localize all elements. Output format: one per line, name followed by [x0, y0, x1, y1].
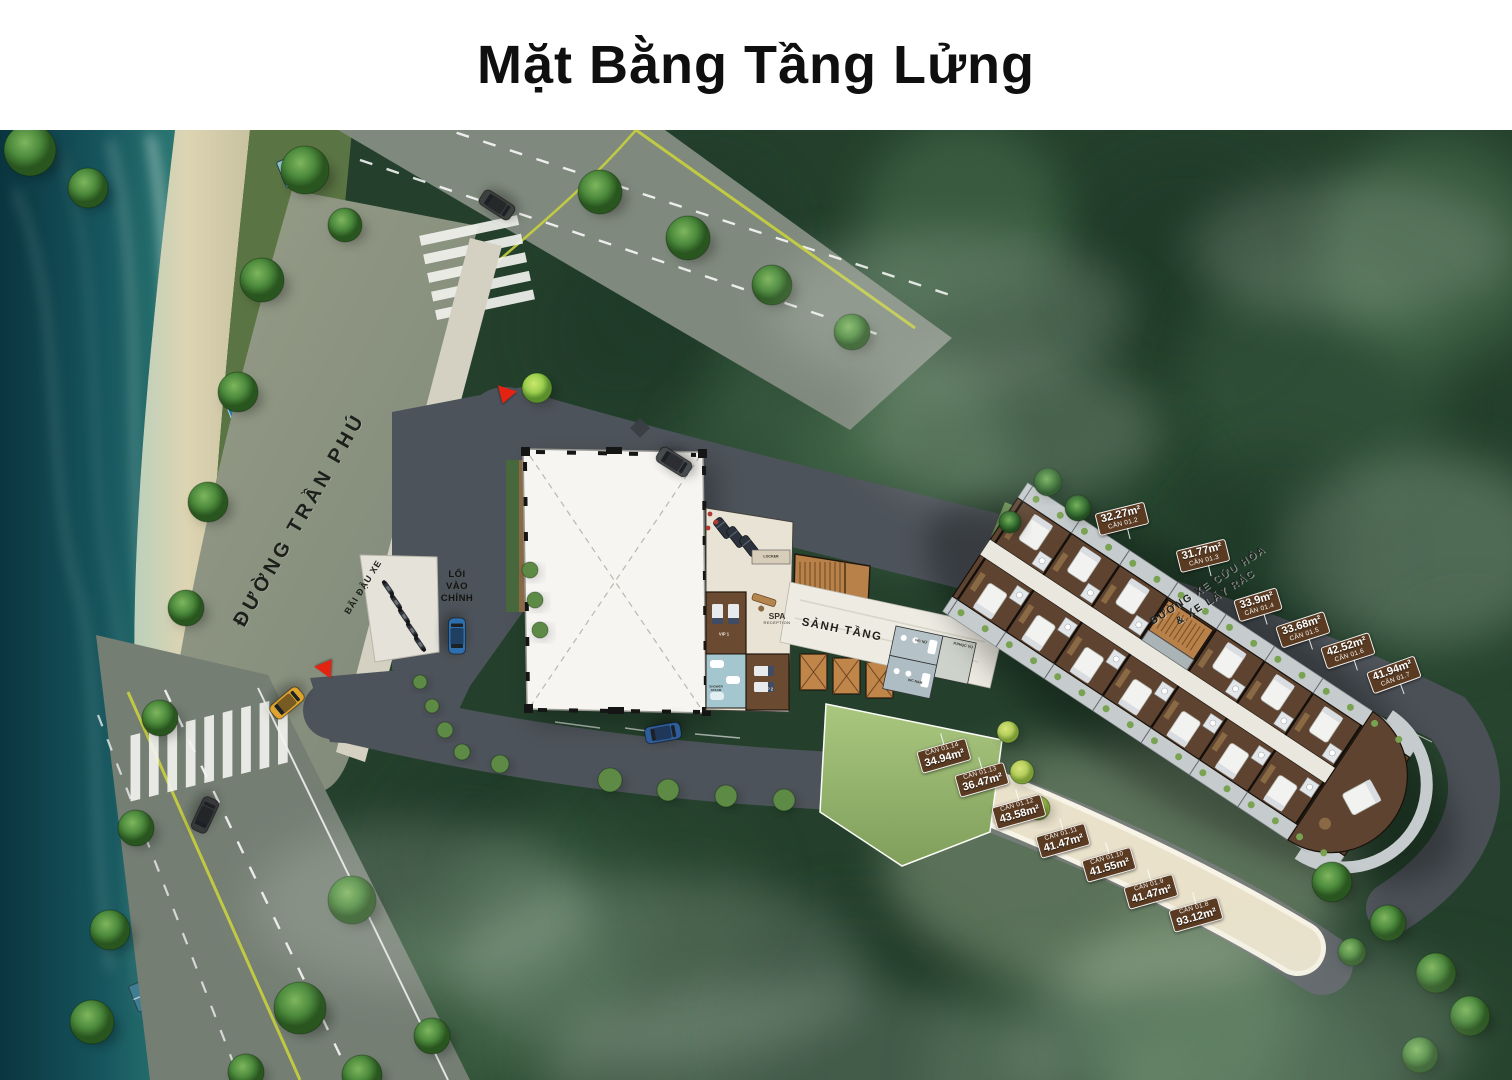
page-header: Mặt Bằng Tầng Lửng — [0, 0, 1512, 130]
page-title: Mặt Bằng Tầng Lửng — [477, 34, 1035, 96]
site-plan-canvas — [0, 130, 1512, 1080]
planter-strip — [506, 460, 521, 612]
site-plan-rendering: ĐƯỜNG TRẦN PHÚ BÃI ĐẬU XE LỐI VÀO CHÍNH … — [0, 130, 1512, 1080]
podium-roof — [523, 449, 706, 713]
floor-plan-page: Mặt Bằng Tầng Lửng — [0, 0, 1512, 1080]
